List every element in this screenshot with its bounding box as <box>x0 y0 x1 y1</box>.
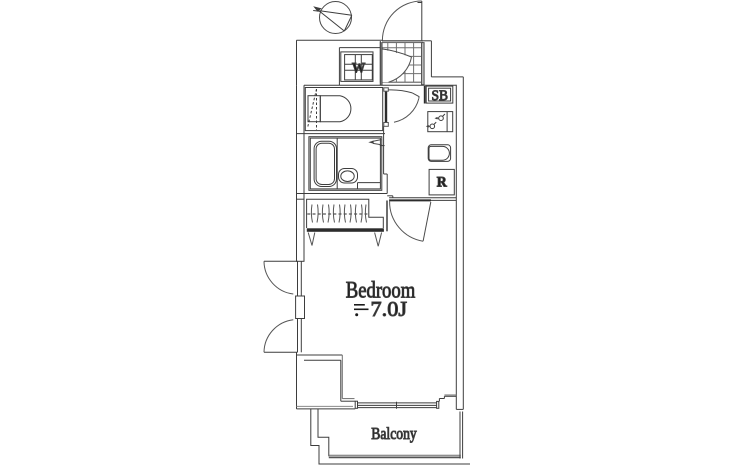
svg-text:W: W <box>352 60 366 76</box>
svg-text:Balcony: Balcony <box>371 424 417 443</box>
svg-text:SB: SB <box>432 88 449 104</box>
svg-text:7.0J: 7.0J <box>371 297 408 321</box>
svg-text:R: R <box>437 175 447 191</box>
